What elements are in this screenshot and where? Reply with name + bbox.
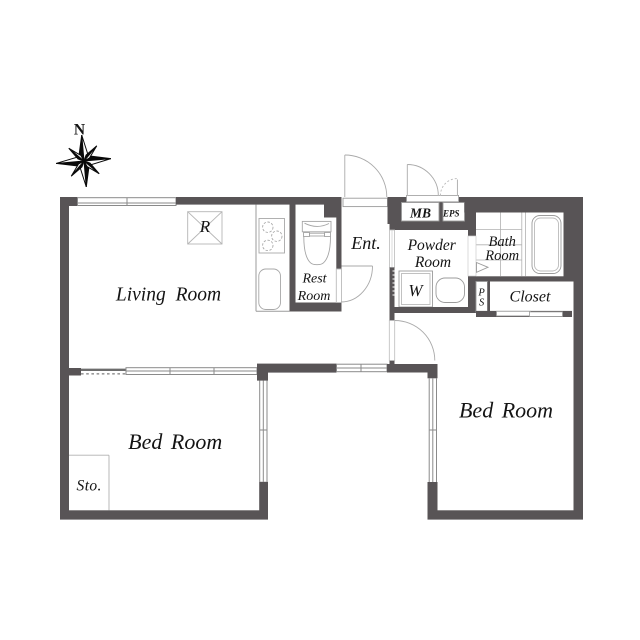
svg-text:S: S xyxy=(479,298,485,309)
svg-text:Closet: Closet xyxy=(510,289,551,306)
svg-text:Sto.: Sto. xyxy=(77,477,102,494)
svg-text:Powder: Powder xyxy=(407,237,457,254)
svg-text:EPS: EPS xyxy=(442,209,460,219)
svg-text:Bed Room: Bed Room xyxy=(128,429,222,454)
svg-text:Room: Room xyxy=(484,248,519,264)
svg-text:W: W xyxy=(408,281,424,300)
svg-text:N: N xyxy=(74,122,85,139)
svg-text:Rest: Rest xyxy=(301,272,327,287)
svg-text:MB: MB xyxy=(409,206,431,221)
svg-text:R: R xyxy=(199,217,211,236)
svg-text:Room: Room xyxy=(414,254,451,271)
svg-text:Room: Room xyxy=(297,289,331,304)
svg-text:Ent.: Ent. xyxy=(350,233,381,253)
svg-text:Bed Room: Bed Room xyxy=(459,397,553,422)
